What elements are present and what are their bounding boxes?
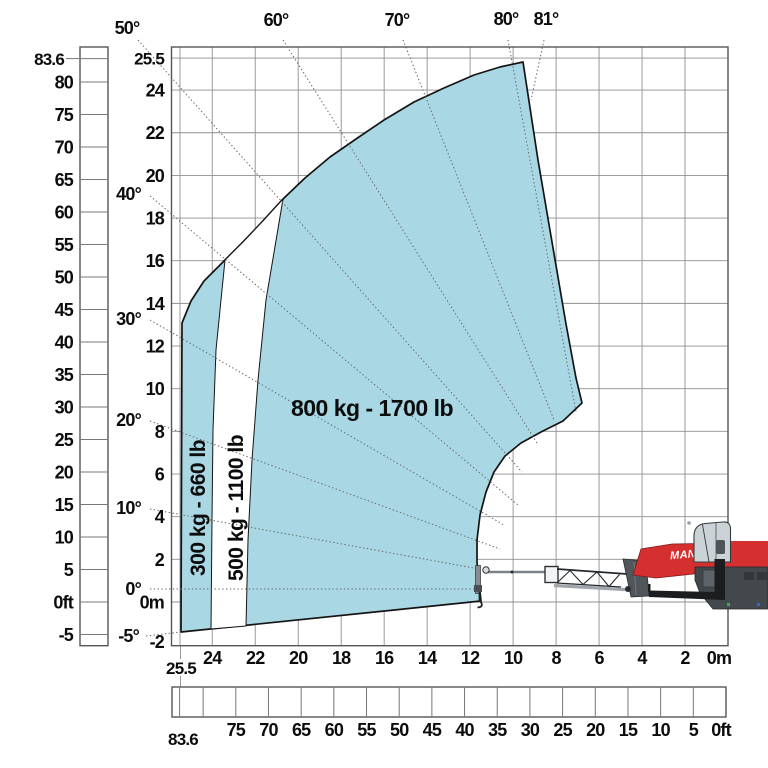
tick-label-ft-left: 83.6 (34, 50, 64, 69)
marker-green (727, 603, 730, 606)
jib-tip-pulley (483, 567, 489, 573)
boom-angle-label-20: 20° (116, 410, 141, 430)
tick-label-m-bottom: 22 (246, 648, 265, 668)
tick-label-ft-left: 15 (55, 495, 74, 515)
tick-label-ft-left: 10 (55, 528, 74, 548)
tick-label-m-left: 2 (155, 550, 165, 570)
hook-block (474, 585, 482, 592)
tick-label-m-left: 24 (146, 81, 165, 101)
telehandler-machine: MANI (474, 521, 768, 609)
tick-label-m-left: 16 (146, 251, 165, 271)
tick-label-m-bottom: 2 (680, 648, 690, 668)
tick-label-m-left: 12 (146, 337, 165, 357)
tick-label-m-left: 18 (146, 209, 165, 229)
boom-angle-label-70: 70° (385, 10, 410, 30)
load-chart-page: -5°0°10°20°30°40°50°60°70°80°81° 300 kg … (0, 0, 768, 768)
zone-label-500kg: 500 kg - 1100 lb (225, 435, 248, 581)
tick-label-ft-bottom: 25 (553, 720, 572, 740)
tick-label-ft-bottom: 15 (619, 720, 638, 740)
tick-label-ft-left: 20 (55, 463, 74, 483)
tick-label-ft-left: 25 (55, 430, 74, 450)
tick-label-ft-bottom: 0ft (711, 720, 731, 740)
boom-angle-label-40: 40° (116, 184, 141, 204)
tick-label-ft-bottom: 5 (689, 720, 699, 740)
zone-label-300kg: 300 kg - 660 lb (187, 440, 210, 576)
tick-label-m-bottom: 0m (707, 648, 731, 668)
tick-label-m-bottom: 14 (418, 648, 437, 668)
cab-seat (716, 540, 725, 554)
bottom-ruler-box (172, 687, 726, 717)
tick-label-ft-bottom: 55 (357, 720, 376, 740)
tick-label-m-bottom: 16 (375, 648, 394, 668)
tick-label-m-left: 8 (155, 422, 165, 442)
load-chart-svg: -5°0°10°20°30°40°50°60°70°80°81° 300 kg … (0, 0, 768, 768)
tick-label-ft-left: 45 (55, 300, 74, 320)
tick-label-ft-bottom: 40 (455, 720, 474, 740)
jib-pin (511, 571, 514, 574)
tick-label-ft-bottom: 50 (390, 720, 409, 740)
tick-label-ft-bottom: 70 (259, 720, 278, 740)
operator-cab (694, 522, 731, 562)
tick-label-m-left: -2 (150, 632, 165, 652)
tick-label-ft-left: 40 (55, 333, 74, 353)
boom-angle-label-10: 10° (116, 498, 141, 518)
boom-angle-label--5: -5° (118, 626, 139, 646)
boom-angle-label-50: 50° (115, 18, 140, 38)
tick-label-ft-bottom: 35 (488, 720, 507, 740)
tick-label-ft-left: 70 (55, 138, 74, 158)
tick-label-ft-left: 75 (55, 105, 74, 125)
tick-label-ft-left: -5 (59, 625, 74, 645)
boom-head-pulley (625, 586, 631, 592)
jib-frame (545, 567, 558, 583)
tick-label-m-bottom: 20 (289, 648, 308, 668)
tick-label-m-left: 25.5 (134, 50, 164, 69)
tick-label-ft-left: 30 (55, 398, 74, 418)
tick-label-ft-bottom: 60 (325, 720, 344, 740)
tick-label-m-bottom: 24 (203, 648, 222, 668)
tick-label-ft-left: 50 (55, 268, 74, 288)
tick-label-ft-bottom: 65 (292, 720, 311, 740)
tick-label-m-bottom: 25.5 (166, 659, 196, 678)
zone-label-800kg: 800 kg - 1700 lb (291, 395, 453, 421)
tick-label-m-bottom: 8 (551, 648, 561, 668)
left-ruler-box (80, 47, 108, 646)
tick-label-ft-bottom: 20 (586, 720, 605, 740)
tick-label-ft-left: 5 (64, 560, 74, 580)
boom-angle-label-60: 60° (264, 10, 289, 30)
tick-label-ft-left: 0ft (53, 593, 73, 613)
boom-angle-label-30: 30° (116, 309, 141, 329)
boom-angle-label-81: 81° (534, 9, 559, 29)
boom-angle-line-81 (531, 40, 544, 100)
vent-left (744, 572, 754, 580)
tick-label-ft-bottom: 45 (423, 720, 442, 740)
tick-label-ft-bottom: 10 (651, 720, 670, 740)
vent-right (757, 572, 767, 580)
boom-angle-label-80: 80° (494, 9, 519, 29)
tick-label-m-left: 0m (140, 593, 164, 613)
fork-tip (648, 584, 651, 592)
tick-label-ft-bottom: 75 (227, 720, 246, 740)
tick-label-ft-left: 55 (55, 235, 74, 255)
tick-label-m-bottom: 6 (594, 648, 604, 668)
bottom-feet-ruler (172, 687, 726, 717)
tick-label-ft-bottom: 83.6 (168, 730, 198, 749)
engine-cover (730, 541, 768, 571)
tick-label-m-left: 22 (146, 123, 165, 143)
cab-beacon (687, 521, 691, 525)
tick-label-m-bottom: 4 (637, 648, 647, 668)
tick-label-ft-left: 65 (55, 170, 74, 190)
tick-label-m-left: 6 (155, 465, 165, 485)
jib-underslung-beam (554, 586, 633, 591)
tick-label-m-bottom: 18 (332, 648, 351, 668)
tick-label-m-left: 4 (155, 507, 165, 527)
tick-label-m-bottom: 12 (461, 648, 480, 668)
tick-label-m-left: 10 (146, 379, 165, 399)
tick-label-m-bottom: 10 (504, 648, 523, 668)
marker-blue (757, 603, 760, 606)
tick-label-ft-left: 80 (55, 73, 74, 93)
tick-label-m-left: 14 (146, 294, 165, 314)
tick-label-ft-left: 35 (55, 365, 74, 385)
tick-label-m-left: 20 (146, 166, 165, 186)
tick-label-ft-left: 60 (55, 203, 74, 223)
tick-label-ft-bottom: 30 (521, 720, 540, 740)
